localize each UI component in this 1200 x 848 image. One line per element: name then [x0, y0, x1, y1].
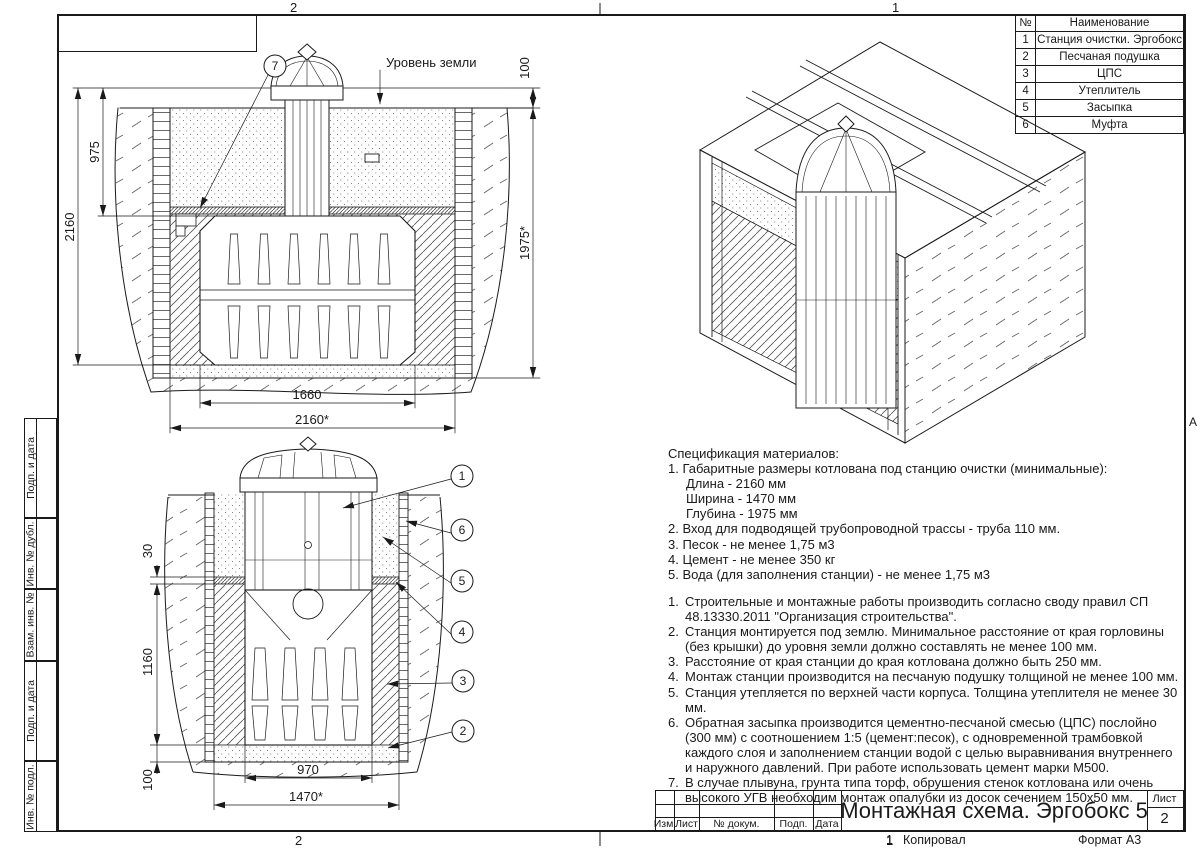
title-block: Изм. Лист № докум. Подп. Дата Монтажная …: [655, 790, 1184, 832]
list-item: 1.Строительные и монтажные работы произв…: [668, 594, 1180, 624]
part-name: Станция очистки. Эргобокс: [1036, 32, 1184, 49]
note-num: 2.: [668, 624, 685, 654]
part-num: 3: [1016, 66, 1036, 83]
spec-line: 4. Цемент - не менее 350 кг: [668, 552, 1185, 567]
note-num: 5.: [668, 685, 685, 715]
materials-spec: Спецификация материалов: 1. Габаритные р…: [668, 446, 1185, 582]
table-row: 4Утеплитель: [1016, 83, 1184, 100]
sidebar-box-sign-date-1: Подп. и дата: [24, 418, 57, 518]
list-item: 2.Станция монтируется под землю. Минимал…: [668, 624, 1180, 654]
spec-line: Глубина - 1975 мм: [668, 506, 1185, 521]
note-num: 1.: [668, 594, 685, 624]
parts-table: № Наименование 1Станция очистки. Эргобок…: [1015, 14, 1184, 134]
row-marker-a: А: [1189, 415, 1197, 429]
table-row: 3ЦПС: [1016, 66, 1184, 83]
sheet-label: Лист: [1147, 791, 1182, 807]
sidebar-label: Подп. и дата: [25, 680, 37, 742]
copied-prefix: 1: [886, 833, 893, 847]
sidebar-box-sign-date-2: Подп. и дата: [24, 661, 57, 761]
titleblock-col-list: Лист: [674, 817, 699, 830]
spec-line: 3. Песок - не менее 1,75 м3: [668, 537, 1185, 552]
table-row: 5Засыпка: [1016, 100, 1184, 117]
note-num: 3.: [668, 654, 685, 669]
parts-header-row: № Наименование: [1016, 15, 1184, 32]
part-name: Засыпка: [1036, 100, 1184, 117]
table-row: 1Станция очистки. Эргобокс: [1016, 32, 1184, 49]
titleblock-col-izm: Изм.: [656, 817, 674, 830]
sheet-number: 2: [1147, 807, 1182, 830]
list-item: 3.Расстояние от края станции до края кот…: [668, 654, 1180, 669]
zone-label-top-2: 2: [290, 0, 297, 15]
list-item: 4.Монтаж станции производится на песчану…: [668, 669, 1180, 684]
note-num: 6.: [668, 715, 685, 775]
top-left-stamp-box: [57, 14, 257, 52]
part-name: Муфта: [1036, 117, 1184, 134]
table-row: 6Муфта: [1016, 117, 1184, 134]
parts-header-name: Наименование: [1036, 15, 1184, 32]
spec-heading: Спецификация материалов:: [668, 446, 1185, 461]
zone-label-bottom-2: 2: [295, 833, 302, 848]
spec-line: 1. Габаритные размеры котлована под стан…: [668, 461, 1185, 476]
list-item: 6.Обратная засыпка производится цементно…: [668, 715, 1180, 775]
part-num: 2: [1016, 49, 1036, 66]
sidebar-label: Взам. инв. №: [25, 592, 37, 657]
copied-label: Копировал: [903, 833, 966, 847]
titleblock-col-sign: Подп.: [774, 817, 813, 830]
sidebar-box-inv-orig: Инв. № подл.: [24, 761, 57, 832]
titleblock-col-doc: № докум.: [699, 817, 774, 830]
part-num: 4: [1016, 83, 1036, 100]
part-num: 6: [1016, 117, 1036, 134]
note-text: Станция монтируется под землю. Минимальн…: [685, 624, 1180, 654]
spec-line: 5. Вода (для заполнения станции) - не ме…: [668, 567, 1185, 582]
spec-line: Длина - 2160 мм: [668, 476, 1185, 491]
zone-label-top-1: 1: [892, 0, 899, 15]
note-text: Строительные и монтажные работы производ…: [685, 594, 1180, 624]
drawing-sheet: 975 2160 100 1975* 1660 2160* Уровень зе…: [0, 0, 1200, 848]
installation-notes: 1.Строительные и монтажные работы произв…: [668, 594, 1180, 805]
page-title: Монтажная схема. Эргобокс 5: [841, 791, 1147, 830]
part-name: Утеплитель: [1036, 83, 1184, 100]
note-text: Обратная засыпка производится цементно-п…: [685, 715, 1180, 775]
spec-line: 2. Вход для подводящей трубопроводной тр…: [668, 521, 1185, 536]
note-num: 4.: [668, 669, 685, 684]
note-text: Расстояние от края станции до края котло…: [685, 654, 1180, 669]
sidebar-box-vzam-inv: Взам. инв. №: [24, 589, 57, 661]
sidebar-box-inv-dup: Инв. № дубл.: [24, 518, 57, 589]
part-name: Песчаная подушка: [1036, 49, 1184, 66]
format-label: Формат А3: [1078, 833, 1141, 847]
note-text: Станция утепляется по верхней части корп…: [685, 685, 1180, 715]
sidebar-label: Инв. № подл.: [25, 764, 37, 829]
table-row: 2Песчаная подушка: [1016, 49, 1184, 66]
part-num: 5: [1016, 100, 1036, 117]
list-item: 5.Станция утепляется по верхней части ко…: [668, 685, 1180, 715]
parts-header-num: №: [1016, 15, 1036, 32]
titleblock-col-date: Дата: [813, 817, 841, 830]
part-num: 1: [1016, 32, 1036, 49]
note-text: Монтаж станции производится на песчаную …: [685, 669, 1180, 684]
part-name: ЦПС: [1036, 66, 1184, 83]
sidebar-label: Подп. и дата: [25, 437, 37, 499]
sidebar-label: Инв. № дубл.: [25, 521, 37, 586]
spec-line: Ширина - 1470 мм: [668, 491, 1185, 506]
